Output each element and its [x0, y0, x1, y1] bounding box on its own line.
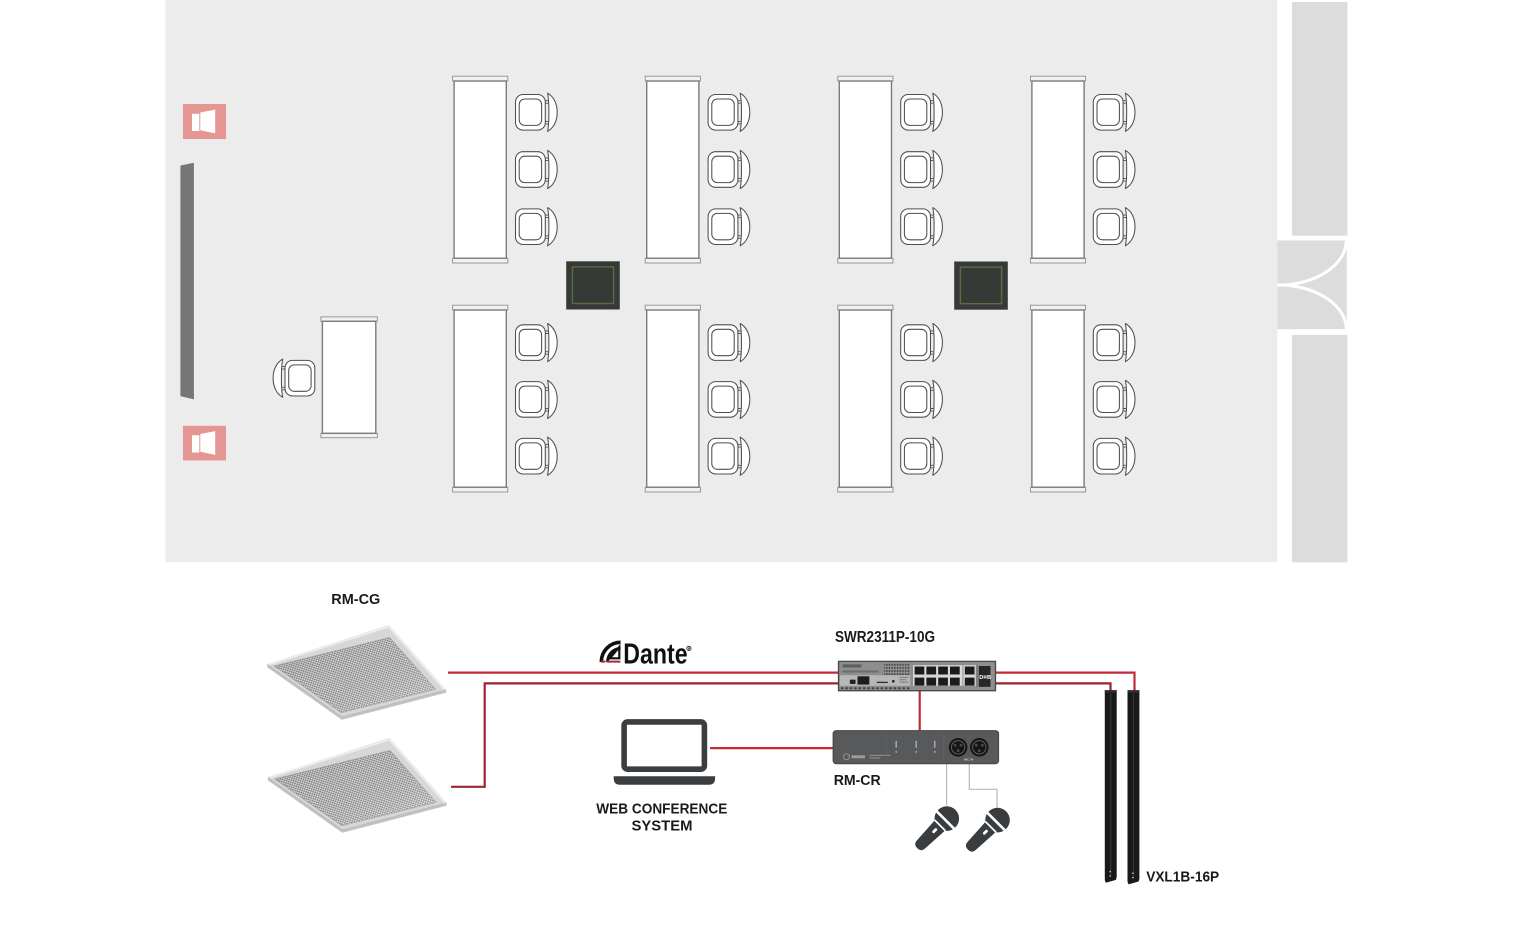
svg-text:MIC IN: MIC IN	[964, 758, 973, 762]
svg-text:RM-CR: RM-CR	[834, 772, 881, 789]
svg-text:B: B	[987, 675, 991, 681]
svg-text:RM-CG: RM-CG	[331, 591, 380, 608]
svg-text:WEB CONFERENCE: WEB CONFERENCE	[596, 801, 727, 817]
svg-text:SWR2311P-10G: SWR2311P-10G	[835, 629, 935, 646]
svg-text:VXL1B-16P: VXL1B-16P	[1146, 868, 1219, 885]
svg-text:Dante: Dante	[623, 638, 687, 670]
svg-text:D: D	[979, 675, 983, 681]
svg-text:SYSTEM: SYSTEM	[632, 818, 693, 834]
